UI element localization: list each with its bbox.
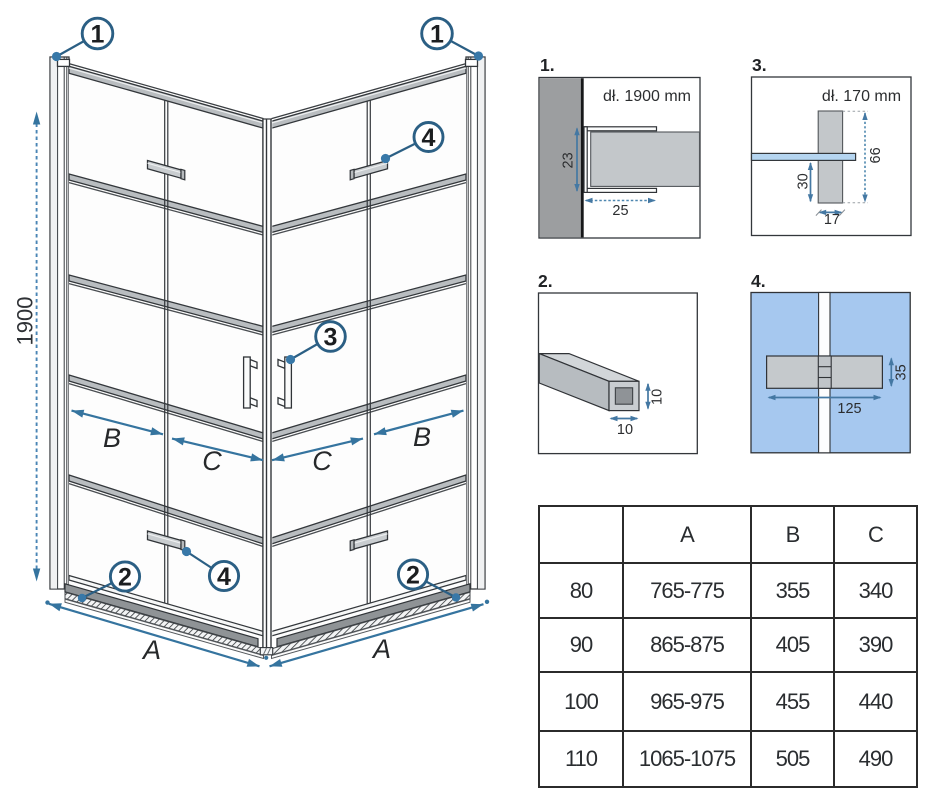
svg-text:1: 1 [430,20,444,48]
svg-text:1900: 1900 [13,297,38,346]
svg-text:4: 4 [217,563,231,591]
svg-text:B: B [413,422,431,452]
svg-text:125: 125 [837,401,861,417]
svg-text:23: 23 [561,152,577,168]
svg-text:dł. 170 mm: dł. 170 mm [822,88,901,105]
svg-text:66: 66 [868,147,884,163]
svg-text:B: B [103,423,121,453]
svg-text:2: 2 [118,563,132,591]
svg-text:35: 35 [894,364,910,380]
svg-text:25: 25 [612,203,628,219]
svg-text:1.: 1. [540,55,555,75]
svg-text:C: C [202,446,222,476]
svg-text:3: 3 [324,323,338,351]
svg-text:3.: 3. [752,55,767,75]
svg-text:C: C [312,446,332,476]
svg-text:1: 1 [91,20,105,48]
svg-text:10: 10 [617,422,633,438]
svg-text:4: 4 [422,124,436,152]
svg-text:4.: 4. [751,271,766,291]
svg-text:2.: 2. [538,271,553,291]
svg-text:30: 30 [796,173,812,189]
svg-text:17: 17 [824,212,840,228]
svg-text:dł. 1900 mm: dł. 1900 mm [603,88,691,105]
svg-text:2: 2 [406,561,420,589]
svg-text:A: A [141,635,161,665]
svg-text:A: A [371,634,391,664]
svg-text:10: 10 [650,389,666,405]
